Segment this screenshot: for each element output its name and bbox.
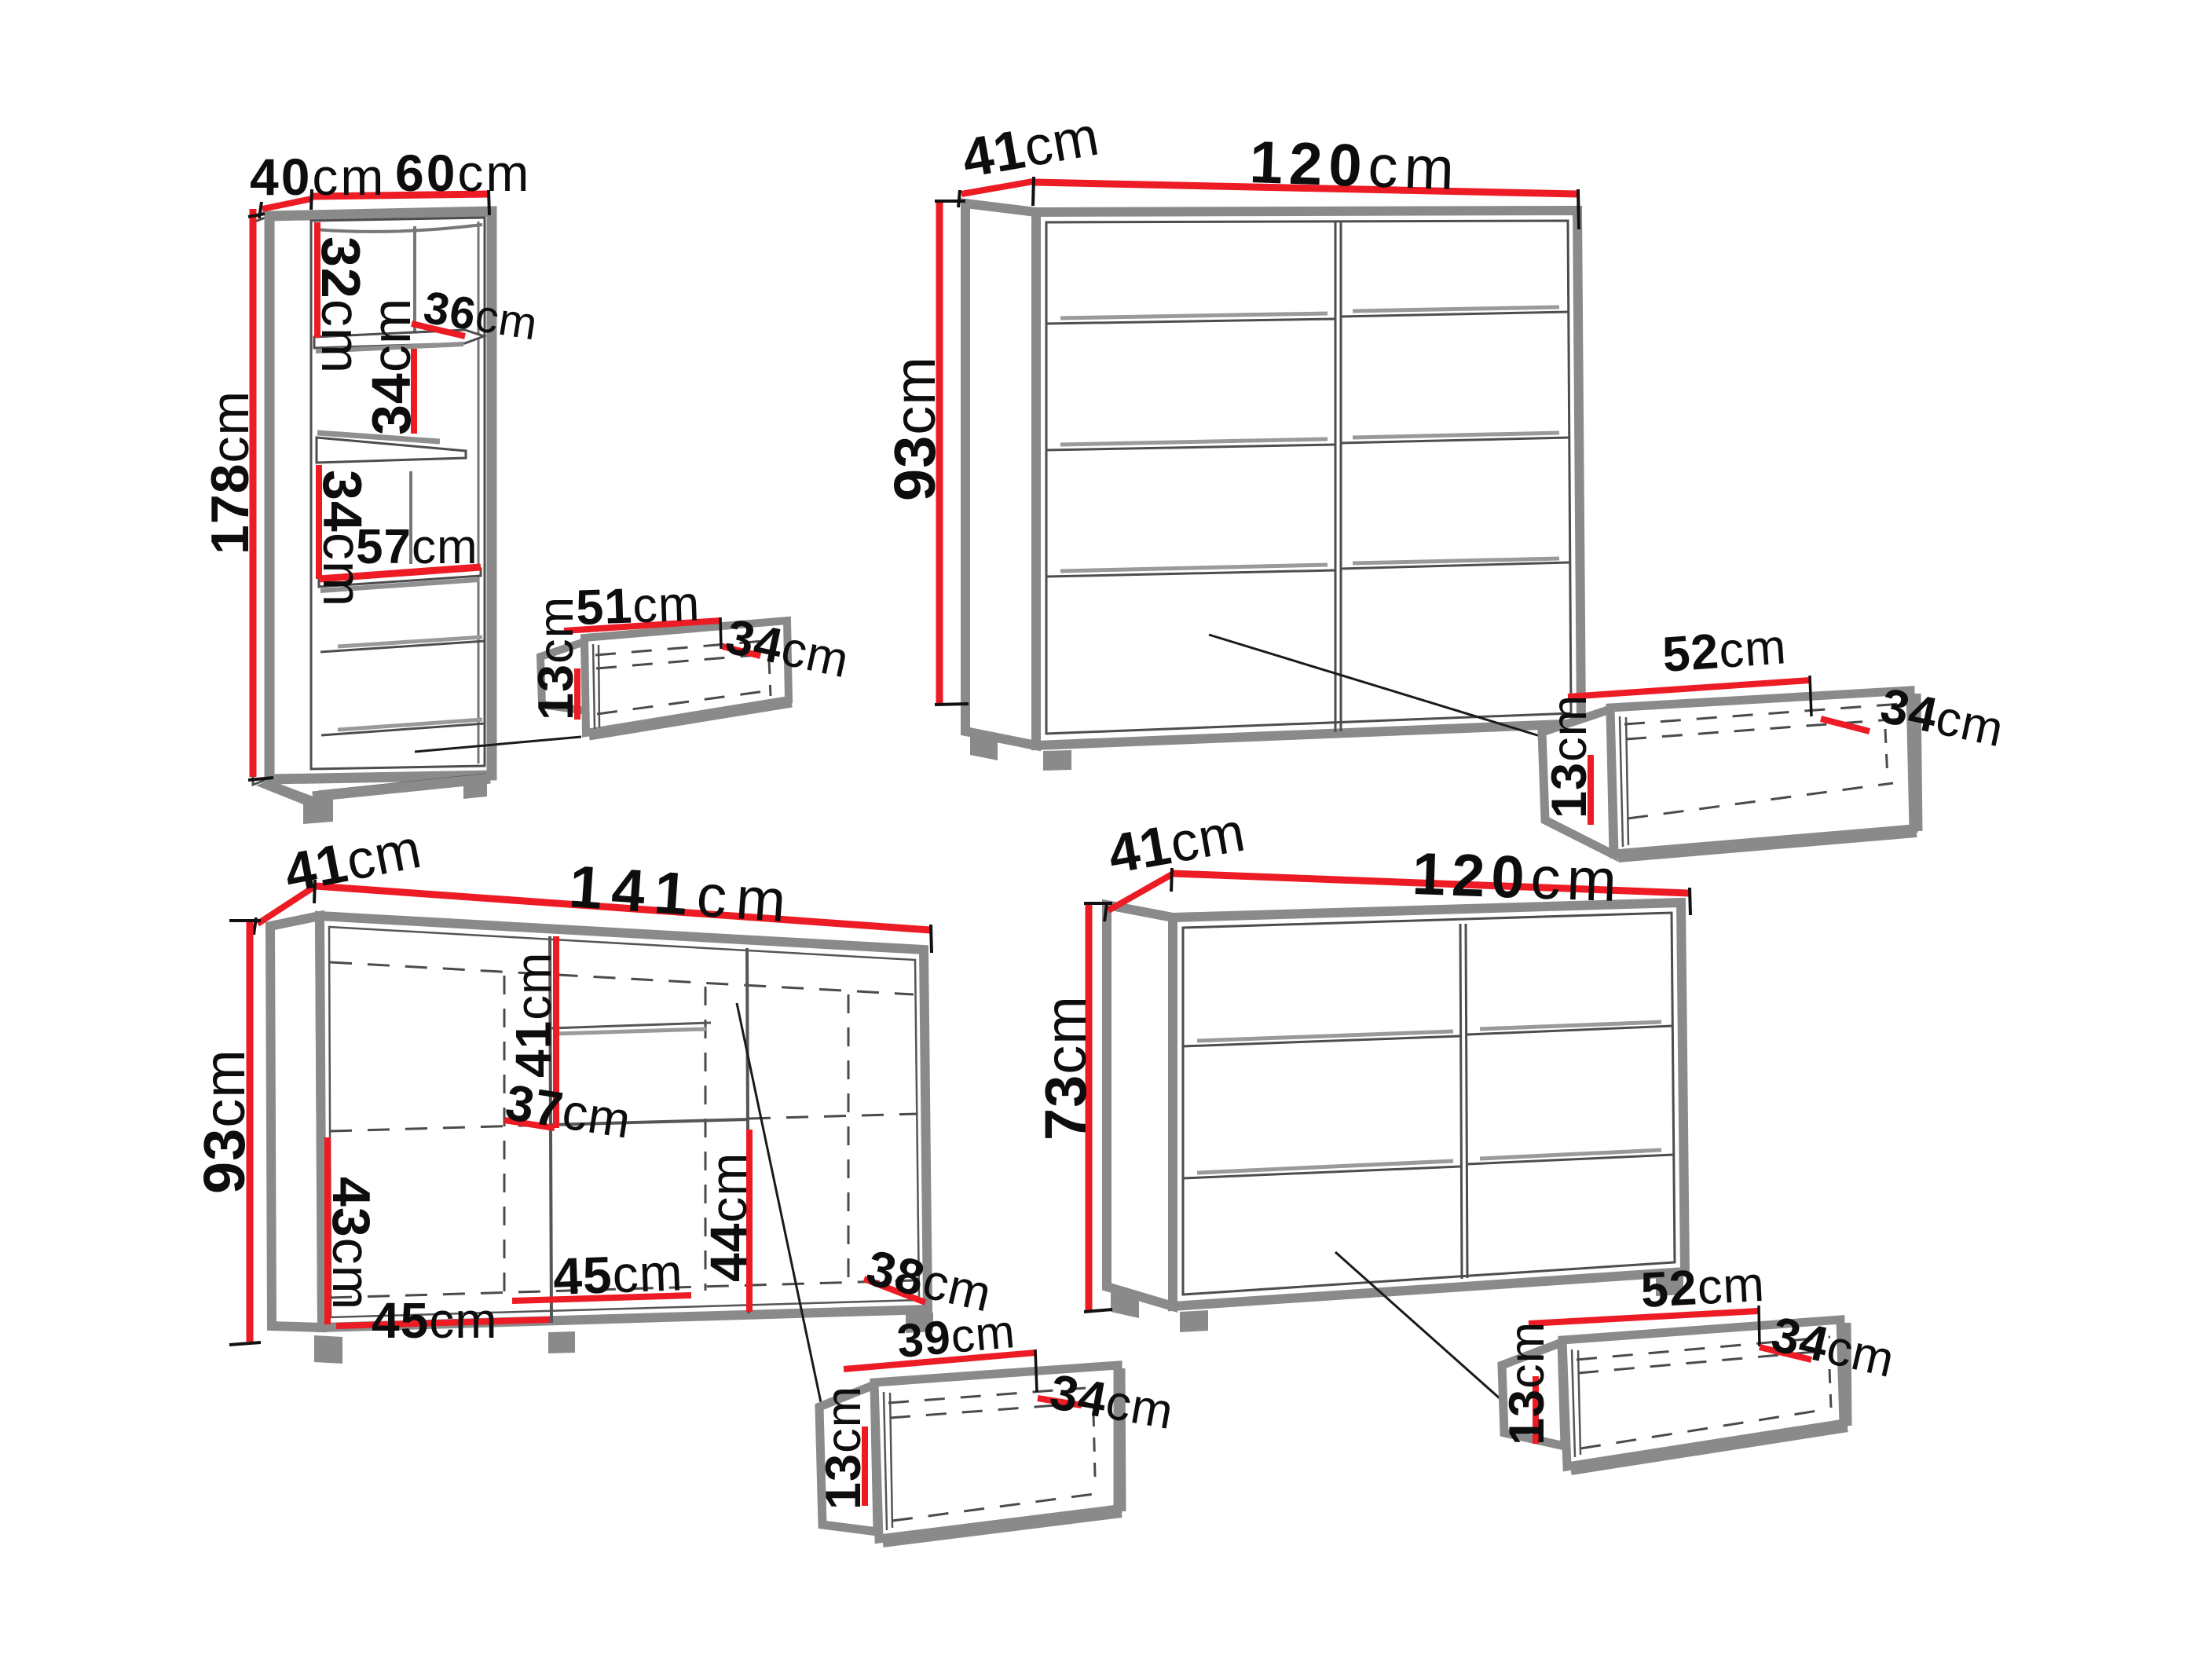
svg-text:13cm: 13cm — [816, 1386, 871, 1510]
svg-text:93cm: 93cm — [882, 356, 947, 501]
svg-text:120cm: 120cm — [1411, 840, 1624, 914]
svg-text:44cm: 44cm — [699, 1152, 757, 1282]
svg-text:13cm: 13cm — [1542, 694, 1597, 819]
svg-text:13cm: 13cm — [1500, 1321, 1555, 1445]
svg-text:43cm: 43cm — [321, 1177, 381, 1310]
svg-text:45cm: 45cm — [372, 1292, 498, 1349]
svg-text:60cm: 60cm — [395, 144, 531, 202]
svg-text:40cm: 40cm — [250, 148, 386, 206]
svg-text:120cm: 120cm — [1248, 129, 1461, 203]
svg-text:52cm: 52cm — [1639, 1257, 1767, 1318]
svg-text:13cm: 13cm — [529, 596, 584, 720]
svg-text:73cm: 73cm — [1033, 995, 1098, 1141]
svg-text:178cm: 178cm — [200, 390, 260, 555]
svg-text:45cm: 45cm — [552, 1243, 684, 1306]
svg-text:52cm: 52cm — [1661, 619, 1789, 683]
svg-text:39cm: 39cm — [895, 1305, 1017, 1368]
svg-text:41cm: 41cm — [505, 952, 562, 1079]
svg-text:51cm: 51cm — [575, 577, 701, 635]
svg-text:93cm: 93cm — [192, 1049, 257, 1194]
svg-text:34cm: 34cm — [361, 298, 422, 435]
svg-text:57cm: 57cm — [356, 520, 478, 574]
